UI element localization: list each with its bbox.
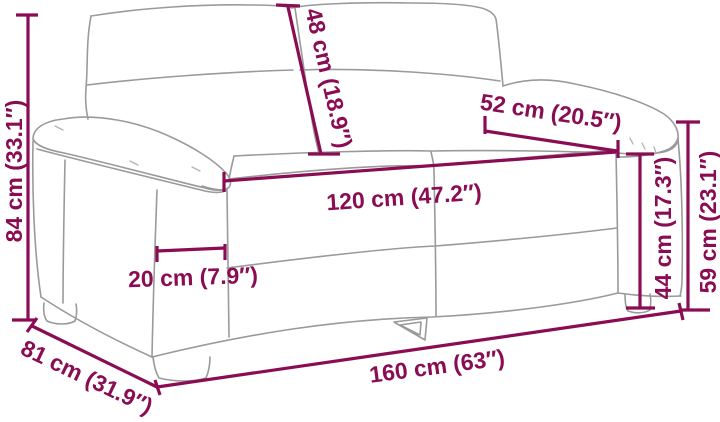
dimension-seat-width: 120 cm (47.2″) (224, 152, 616, 215)
diagram-stage: 84 cm (33.1″) 48 cm (18.9″) 52 cm (20.5″… (0, 0, 720, 422)
leg-back-left (44, 303, 77, 324)
leg-center-bracket-outer (394, 318, 427, 340)
stitch-marks-right-arm (630, 138, 656, 153)
leg-center-bracket-inner (400, 322, 421, 335)
front-panel-seam (227, 228, 617, 268)
dimension-annotations: 84 cm (33.1″) 48 cm (18.9″) 52 cm (20.5″… (1, 5, 720, 419)
dimension-label-overall-width: 160 cm (63″) (368, 344, 507, 388)
sofa-back-left-edge (86, 16, 91, 119)
sofa-left-corner-seam (63, 160, 65, 303)
dimension-label-seat-height: 44 cm (17.3″) (650, 157, 676, 300)
dimension-label-arm-height: 59 cm (23.1″) (695, 151, 720, 294)
dimension-armrest-width: 20 cm (7.9″) (128, 244, 259, 292)
dimension-label-overall-height: 84 cm (33.1″) (1, 100, 27, 243)
dimension-label-seat-width: 120 cm (47.2″) (326, 179, 483, 216)
dimension-label-armrest-length: 52 cm (20.5″) (479, 89, 624, 136)
seat-left-edge (229, 156, 234, 180)
left-armrest-piping-a (33, 139, 228, 190)
leg-front-left (153, 357, 210, 381)
dimension-label-armrest-width: 20 cm (7.9″) (128, 262, 259, 293)
dimension-label-backrest-height: 48 cm (18.9″) (300, 6, 357, 151)
seat-center-seam (431, 152, 436, 316)
front-bottom-edge (152, 293, 618, 357)
seat-right-edge (616, 153, 618, 293)
dimension-overall-depth: 81 cm (31.9″) (17, 318, 157, 419)
sofa-dimension-diagram: 84 cm (33.1″) 48 cm (18.9″) 52 cm (20.5″… (0, 0, 720, 422)
leg-front-right (625, 294, 651, 313)
dimension-armrest-length: 52 cm (20.5″) (479, 89, 624, 158)
sofa-back-seam-left (87, 70, 293, 85)
dimension-backrest-height: 48 cm (18.9″) (276, 5, 358, 154)
sofa-left-outer-edge (33, 141, 41, 297)
sofa-right-outer-edge (678, 139, 682, 296)
seat-front-edge (229, 150, 614, 179)
dimension-seat-height: 44 cm (17.3″) (626, 154, 676, 308)
stitch-marks-left-arm (55, 126, 200, 171)
